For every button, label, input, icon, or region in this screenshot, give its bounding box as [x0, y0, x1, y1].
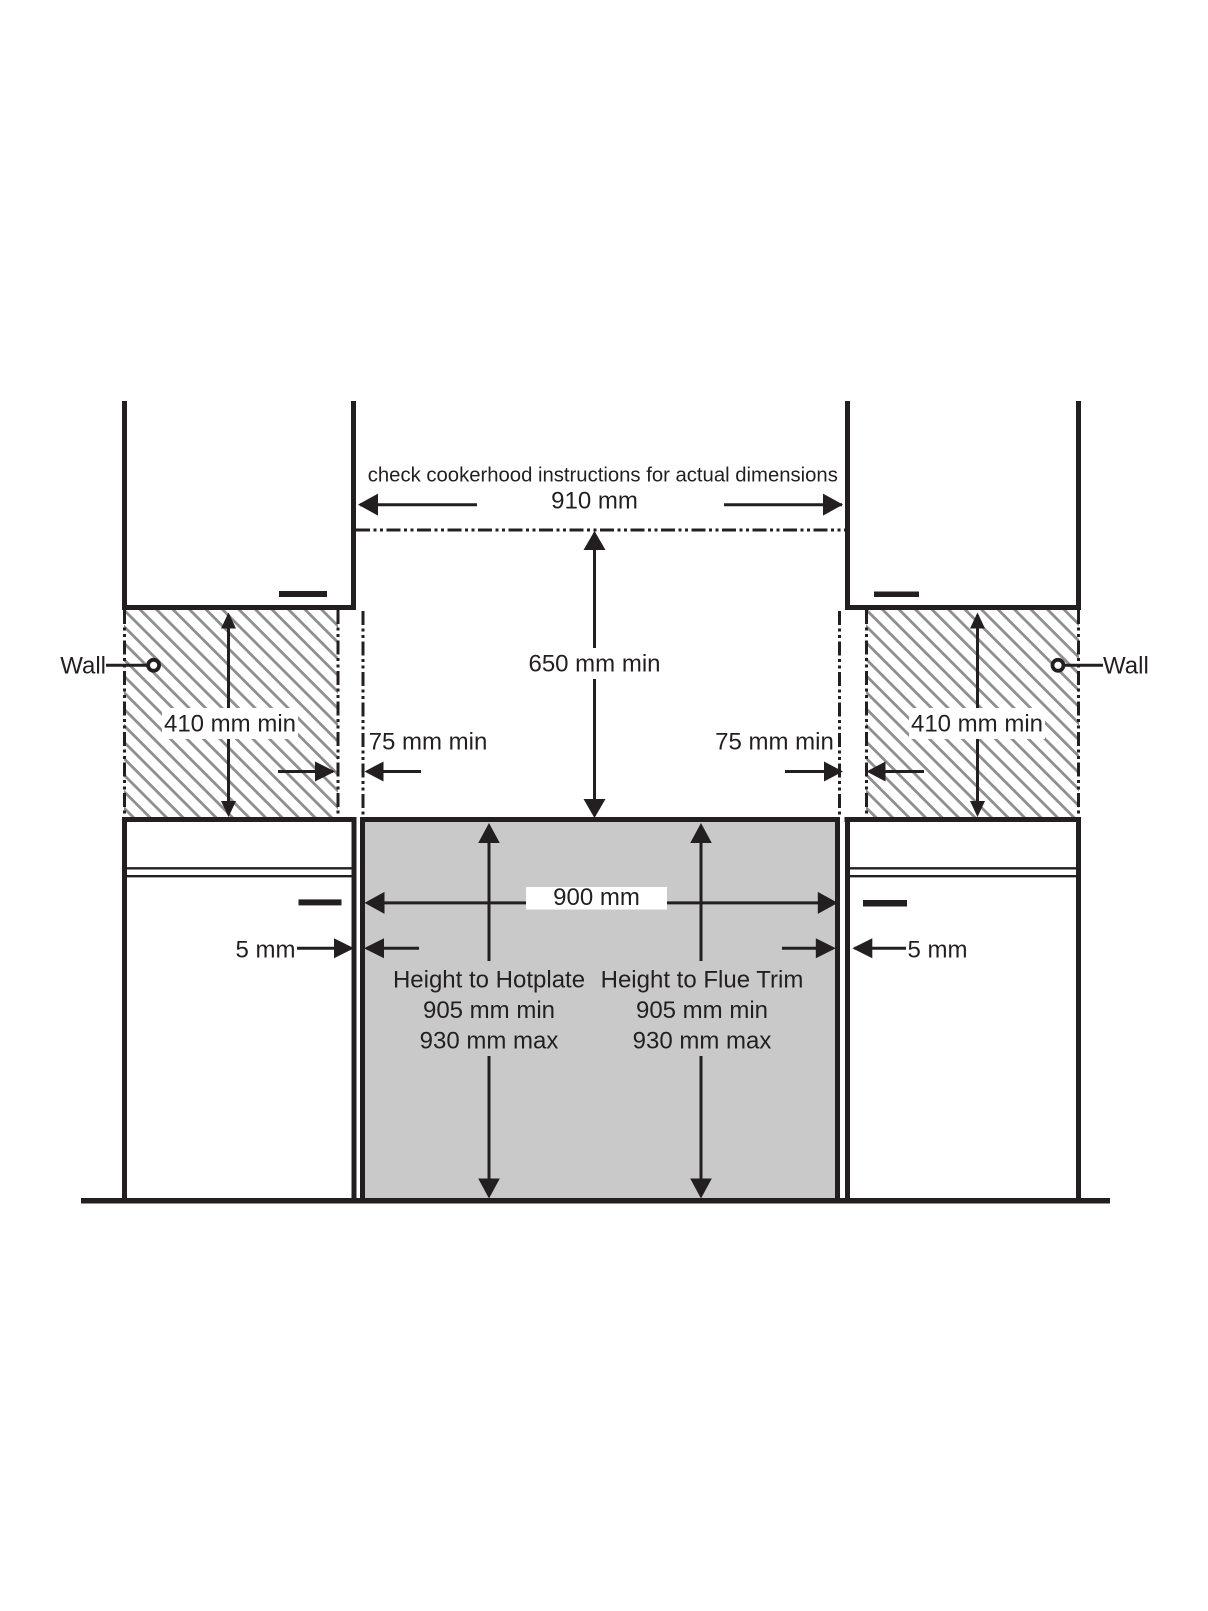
svg-text:5 mm: 5 mm: [908, 937, 968, 964]
svg-text:650 mm min: 650 mm min: [528, 651, 660, 678]
svg-text:Wall: Wall: [1103, 653, 1149, 680]
svg-text:410 mm min: 410 mm min: [911, 711, 1043, 738]
svg-text:check cookerhood instructions: check cookerhood instructions for actual…: [368, 465, 838, 487]
svg-text:Height to Flue Trim: Height to Flue Trim: [601, 967, 804, 994]
svg-text:905 mm min: 905 mm min: [423, 997, 555, 1024]
svg-text:930 mm max: 930 mm max: [420, 1028, 559, 1055]
svg-text:930 mm max: 930 mm max: [633, 1028, 772, 1055]
svg-text:75 mm min: 75 mm min: [715, 729, 834, 756]
svg-text:Wall: Wall: [60, 653, 106, 680]
svg-text:5 mm: 5 mm: [236, 937, 296, 964]
svg-text:900 mm: 900 mm: [553, 884, 640, 911]
svg-text:410 mm min: 410 mm min: [164, 711, 296, 738]
svg-text:Height to Hotplate: Height to Hotplate: [393, 967, 585, 994]
svg-text:905 mm min: 905 mm min: [636, 997, 768, 1024]
svg-text:75 mm min: 75 mm min: [369, 729, 488, 756]
svg-text:910 mm: 910 mm: [551, 488, 638, 515]
